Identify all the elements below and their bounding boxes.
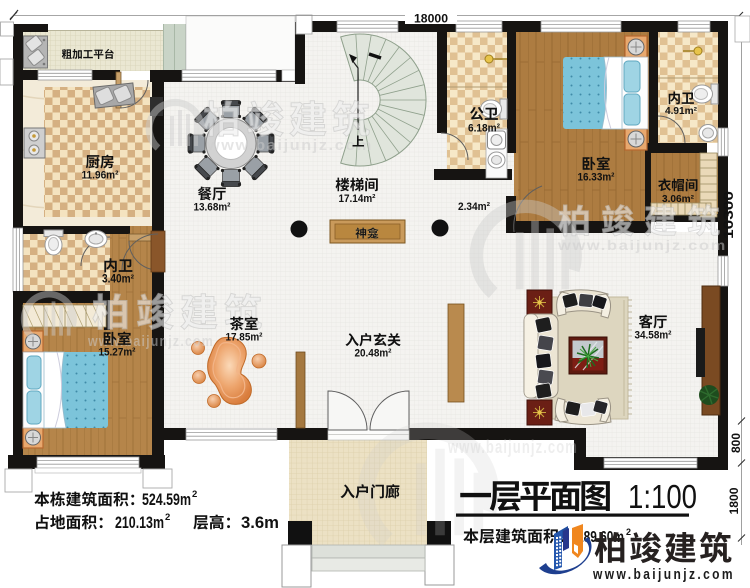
svg-text:www.baijunjz.com: www.baijunjz.com (592, 566, 735, 583)
svg-text:2: 2 (626, 527, 631, 537)
svg-text:3.6m: 3.6m (241, 514, 279, 532)
svg-text:2.34m²: 2.34m² (458, 201, 490, 213)
svg-text:17.14m²: 17.14m² (339, 193, 376, 205)
svg-text:1:100: 1:100 (628, 478, 697, 515)
svg-text:20.48m²: 20.48m² (355, 348, 392, 360)
svg-text:13.68m²: 13.68m² (194, 202, 231, 214)
svg-text:800: 800 (729, 433, 743, 453)
svg-text:210.13m: 210.13m (115, 514, 164, 532)
svg-text:16.33m²: 16.33m² (578, 172, 615, 184)
svg-text:34.58m²: 34.58m² (635, 330, 672, 342)
svg-text:17.85m²: 17.85m² (226, 332, 263, 344)
svg-text:www.baijunjz.com: www.baijunjz.com (206, 137, 373, 154)
svg-text:10300: 10300 (721, 191, 736, 239)
svg-text:2: 2 (165, 512, 170, 523)
svg-text:3.40m²: 3.40m² (102, 274, 134, 286)
svg-text:15.27m²: 15.27m² (99, 347, 136, 359)
svg-text:11.96m²: 11.96m² (82, 170, 119, 182)
svg-text:18000: 18000 (414, 14, 448, 26)
svg-text:2: 2 (192, 489, 197, 500)
svg-text:6.18m²: 6.18m² (468, 123, 500, 135)
svg-text:4.91m²: 4.91m² (665, 105, 697, 117)
svg-text:1800: 1800 (727, 487, 741, 514)
svg-text:524.59m: 524.59m (142, 491, 191, 509)
svg-text:3.06m²: 3.06m² (662, 193, 694, 205)
svg-text:www.baijunjz.com: www.baijunjz.com (447, 437, 578, 457)
svg-text:www.baijunjz.com: www.baijunjz.com (557, 237, 727, 253)
